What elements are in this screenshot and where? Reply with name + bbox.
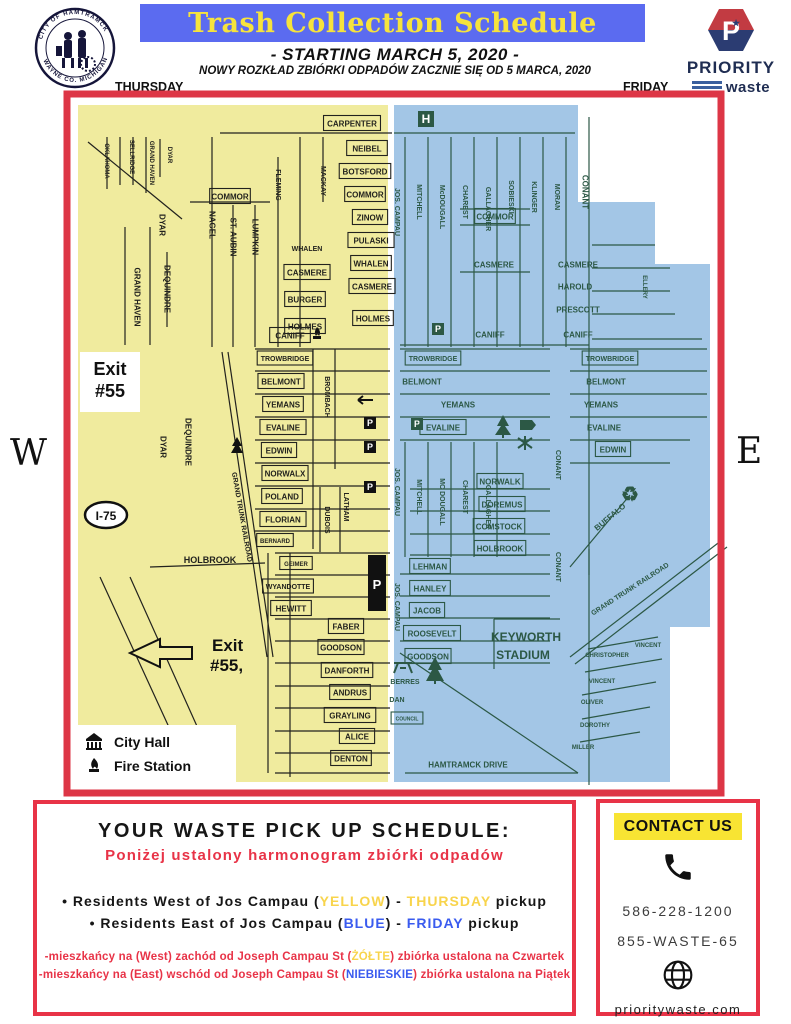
svg-text:JOS. CAMPAU: JOS. CAMPAU: [393, 188, 400, 236]
street-label: PRESCOTT: [556, 306, 600, 315]
svg-text:McDOUGALL: McDOUGALL: [438, 185, 445, 230]
svg-text:DYAR: DYAR: [157, 214, 166, 236]
svg-text:GOODSON: GOODSON: [320, 644, 362, 653]
street-label: CONANT: [554, 552, 561, 583]
exit-55-sign: Exit #55: [80, 352, 140, 412]
svg-text:NORWALX: NORWALX: [265, 470, 306, 479]
svg-text:BERRES: BERRES: [390, 679, 420, 686]
svg-text:EVALINE: EVALINE: [587, 424, 622, 433]
svg-text:ZINOW: ZINOW: [357, 214, 384, 223]
collection-zone-map: H P PPPPP ♻ Exit #55 I-75 Exit #55,: [70, 97, 718, 790]
street-label: GRAND HAVEN: [132, 268, 141, 327]
west-compass-label: W: [10, 433, 47, 474]
svg-text:OKLAHOMA: OKLAHOMA: [103, 143, 109, 179]
svg-text:EVALINE: EVALINE: [426, 424, 461, 433]
west-rule: • Residents West of Jos Campau (YELLOW) …: [37, 890, 572, 912]
svg-text:JOS. CAMPAU: JOS. CAMPAU: [393, 468, 400, 516]
svg-text:P: P: [373, 577, 382, 592]
parking-icon: P: [364, 417, 376, 429]
phone-number-1: 586-228-1200: [600, 903, 756, 919]
street-label: STADIUM: [496, 648, 550, 662]
street-label: DYAR: [158, 436, 167, 458]
svg-text:Exit: Exit: [93, 359, 126, 379]
legend-city-hall: City Hall: [114, 734, 170, 750]
schedule-subtitle-polish: Poniżej ustalony harmonogram zbiórki odp…: [45, 847, 564, 864]
svg-text:BELMONT: BELMONT: [261, 378, 301, 387]
title-banner: Trash Collection Schedule: [140, 4, 645, 42]
street-label: CANIFF: [563, 331, 592, 340]
svg-text:DYAR: DYAR: [158, 436, 167, 458]
street-label: VINCENT: [589, 679, 616, 685]
svg-text:BOTSFORD: BOTSFORD: [343, 168, 388, 177]
street-label: LUMPKIN: [250, 219, 259, 256]
svg-text:NAGEL: NAGEL: [207, 211, 216, 239]
street-label: KLINGER: [530, 181, 537, 213]
svg-text:ANDRUS: ANDRUS: [333, 689, 368, 698]
street-label: MILLER: [572, 745, 595, 751]
svg-text:GRAND HAVEN: GRAND HAVEN: [148, 141, 154, 185]
svg-text:EVALINE: EVALINE: [266, 424, 301, 433]
street-label: LATHAM: [342, 492, 349, 521]
svg-text:ALICE: ALICE: [345, 733, 370, 742]
street-label: GRAND HAVEN: [148, 141, 154, 185]
svg-text:CHAREST: CHAREST: [461, 185, 468, 220]
svg-text:CHAREST: CHAREST: [461, 480, 468, 515]
street-label: BERRES: [390, 679, 420, 686]
logo-waste-word: waste: [726, 79, 770, 96]
svg-text:FLEMING: FLEMING: [274, 169, 281, 201]
svg-text:DOROTHY: DOROTHY: [580, 723, 610, 729]
street-label: CHRISTOPHER: [585, 653, 629, 659]
svg-text:BELMONT: BELMONT: [402, 378, 442, 387]
svg-text:DEQUINDRE: DEQUINDRE: [183, 418, 192, 467]
map-legend: City Hall Fire Station: [78, 725, 236, 782]
svg-text:MC DOUGALL: MC DOUGALL: [438, 478, 445, 526]
svg-text:EDWIN: EDWIN: [600, 446, 627, 455]
street-label: CANIFF: [475, 331, 504, 340]
page-title: Trash Collection Schedule: [188, 8, 597, 39]
svg-text:HOLBROOK: HOLBROOK: [477, 545, 524, 554]
svg-text:ST. AUBIN: ST. AUBIN: [228, 218, 237, 257]
parking-icon: P: [364, 481, 376, 493]
svg-text:P: P: [367, 418, 373, 428]
street-label: JOS. CAMPAU: [393, 583, 400, 631]
street-label: MITCHELL: [415, 479, 422, 515]
svg-text:DAN: DAN: [389, 697, 404, 704]
street-label: BELMONT: [402, 378, 442, 387]
svg-text:BURGER: BURGER: [288, 296, 323, 305]
svg-text:LEHMAN: LEHMAN: [413, 563, 447, 572]
recycle-icon: ♻: [621, 484, 639, 506]
svg-text:FABER: FABER: [332, 623, 359, 632]
svg-text:P: P: [367, 482, 373, 492]
phone-number-2: 855-WASTE-65: [600, 933, 756, 949]
svg-text:GOODSON: GOODSON: [407, 653, 449, 662]
street-label: HAROLD: [558, 283, 592, 292]
svg-text:TROWBRIDGE: TROWBRIDGE: [261, 356, 310, 363]
svg-text:YEMANS: YEMANS: [441, 401, 476, 410]
svg-text:HAMTRAMCK DRIVE: HAMTRAMCK DRIVE: [428, 761, 508, 770]
hospital-icon: H: [418, 111, 434, 127]
svg-text:COMMOR: COMMOR: [476, 213, 514, 222]
svg-text:HOLBROOK: HOLBROOK: [184, 555, 237, 565]
logo-wordmark: PRIORITY: [676, 58, 786, 78]
street-label: OKLAHOMA: [103, 143, 109, 179]
svg-text:PULASKI: PULASKI: [353, 237, 388, 246]
svg-text:CASMERE: CASMERE: [474, 261, 515, 270]
svg-text:MORAN: MORAN: [553, 184, 560, 210]
svg-text:GEIMER: GEIMER: [284, 562, 308, 568]
svg-text:DENTON: DENTON: [334, 755, 368, 764]
street-label: WHALEN: [292, 246, 323, 253]
svg-text:P: P: [435, 324, 441, 334]
legend-fire-station: Fire Station: [114, 758, 191, 774]
svg-text:YEMANS: YEMANS: [266, 401, 301, 410]
street-label: CHAREST: [461, 185, 468, 220]
svg-text:YEMANS: YEMANS: [584, 401, 619, 410]
svg-text:MACKAY: MACKAY: [319, 166, 326, 196]
svg-text:LATHAM: LATHAM: [342, 492, 349, 521]
street-label: DUBOIS: [323, 506, 330, 534]
start-date-line-polish: NOWY ROZKŁAD ZBIÓRKI ODPADÓW ZACZNIE SIĘ…: [100, 65, 690, 77]
svg-text:CONANT: CONANT: [554, 450, 561, 481]
map-notch-topright: [578, 105, 710, 202]
street-label: KEYWORTH: [491, 630, 561, 644]
svg-text:P: P: [414, 419, 420, 429]
svg-text:BELMONT: BELMONT: [586, 378, 626, 387]
street-label: McDOUGALL: [438, 185, 445, 230]
svg-text:JOS. CAMPAU: JOS. CAMPAU: [393, 583, 400, 631]
svg-text:WYANDOTTE: WYANDOTTE: [266, 584, 311, 591]
parking-icon: P: [364, 441, 376, 453]
svg-text:KLINGER: KLINGER: [530, 181, 537, 213]
svg-text:HOLMES: HOLMES: [356, 315, 391, 324]
schedule-title: YOUR WASTE PICK UP SCHEDULE:: [45, 820, 564, 843]
street-label: CHAREST: [461, 480, 468, 515]
street-label: DAN: [389, 697, 404, 704]
svg-text:CONANT: CONANT: [580, 175, 589, 209]
svg-text:Exit: Exit: [212, 636, 244, 655]
street-label: CASMERE: [558, 261, 599, 270]
svg-text:PRESCOTT: PRESCOTT: [556, 306, 600, 315]
svg-text:WHALEN: WHALEN: [292, 246, 323, 253]
svg-text:MITCHELL: MITCHELL: [415, 479, 422, 515]
svg-text:DOREMUS: DOREMUS: [482, 501, 524, 510]
street-label: CASMERE: [474, 261, 515, 270]
street-label: JOS. CAMPAU: [393, 188, 400, 236]
svg-text:#55,: #55,: [210, 656, 243, 675]
street-label: HAMTRAMCK DRIVE: [428, 761, 508, 770]
street-label: DEQUINDRE: [183, 418, 192, 467]
svg-text:SELLRIDGE: SELLRIDGE: [128, 140, 134, 174]
street-label: DYAR: [157, 214, 166, 236]
svg-text:GRAND HAVEN: GRAND HAVEN: [132, 268, 141, 327]
svg-text:STADIUM: STADIUM: [496, 648, 550, 662]
svg-text:TROWBRIDGE: TROWBRIDGE: [409, 356, 458, 363]
svg-text:COMMOR: COMMOR: [211, 193, 249, 202]
svg-text:CONANT: CONANT: [554, 552, 561, 583]
street-label: MC DOUGALL: [438, 478, 445, 526]
map-notch-right: [655, 202, 710, 264]
svg-text:VINCENT: VINCENT: [635, 643, 662, 649]
schedule-box: YOUR WASTE PICK UP SCHEDULE: Poniżej ust…: [33, 800, 576, 1016]
seal-inner-ring: [46, 19, 104, 77]
street-label: EVALINE: [587, 424, 622, 433]
street-label: DYAR: [166, 147, 172, 164]
svg-text:DANFORTH: DANFORTH: [325, 667, 370, 676]
contact-box: CONTACT US 586-228-1200 855-WASTE-65 pri…: [596, 799, 760, 1016]
priority-waste-logo: P ★ PRIORITY waste: [676, 8, 786, 96]
street-label: MACKAY: [319, 166, 326, 196]
svg-text:MITCHELL: MITCHELL: [415, 184, 422, 220]
city-seal: CITY OF HAMTRAMCK WAYNE CO. MICHIGAN: [30, 6, 120, 90]
svg-text:I-75: I-75: [96, 509, 117, 523]
svg-text:HANLEY: HANLEY: [414, 585, 448, 594]
i75-shield-icon: I-75: [85, 502, 127, 528]
street-label: CONANT: [554, 450, 561, 481]
svg-text:BROMBACH: BROMBACH: [323, 376, 330, 418]
street-label: DOROTHY: [580, 723, 610, 729]
svg-text:DUBOIS: DUBOIS: [323, 506, 330, 534]
street-label: DEQUINDRE: [162, 265, 171, 314]
logo-star-icon: ★: [732, 18, 741, 28]
svg-text:CASMERE: CASMERE: [558, 261, 599, 270]
svg-text:OLIVER: OLIVER: [581, 700, 604, 706]
svg-text:GRAYLING: GRAYLING: [329, 712, 371, 721]
phone-icon: [661, 850, 695, 884]
svg-text:VINCENT: VINCENT: [589, 679, 616, 685]
svg-text:CANIFF: CANIFF: [275, 332, 304, 341]
svg-text:NEIBEL: NEIBEL: [352, 145, 381, 154]
svg-text:CASMERE: CASMERE: [287, 269, 328, 278]
svg-text:COUNCIL: COUNCIL: [396, 717, 419, 723]
svg-text:FLORIAN: FLORIAN: [265, 516, 301, 525]
west-rule-polish: -mieszkańcy na (West) zachód od Joseph C…: [37, 948, 572, 966]
street-label: SELLRIDGE: [128, 140, 134, 174]
map-notch-bottomright: [670, 627, 710, 782]
svg-text:CASMERE: CASMERE: [352, 283, 393, 292]
svg-text:CARPENTER: CARPENTER: [327, 120, 377, 129]
street-label: YEMANS: [584, 401, 619, 410]
street-label: BELMONT: [586, 378, 626, 387]
svg-text:CANIFF: CANIFF: [475, 331, 504, 340]
street-label: FLEMING: [274, 169, 281, 201]
svg-text:H: H: [422, 112, 431, 126]
svg-text:MILLER: MILLER: [572, 745, 595, 751]
svg-text:TROWBRIDGE: TROWBRIDGE: [586, 356, 635, 363]
street-label: NAGEL: [207, 211, 216, 239]
east-compass-label: E: [736, 431, 762, 472]
parking-garage-icon: P: [368, 555, 386, 611]
east-rule-polish: -mieszkańcy na (East) wschód od Joseph C…: [37, 966, 572, 984]
svg-text:HAROLD: HAROLD: [558, 283, 592, 292]
svg-text:COMSTOCK: COMSTOCK: [476, 523, 523, 532]
parking-icon: P: [432, 323, 444, 335]
svg-text:HEWITT: HEWITT: [276, 605, 307, 614]
svg-text:EDWIN: EDWIN: [266, 447, 293, 456]
street-label: MORAN: [553, 184, 560, 210]
svg-text:#55: #55: [95, 381, 125, 401]
svg-text:JACOB: JACOB: [413, 607, 441, 616]
globe-icon: [662, 959, 694, 991]
svg-text:COMMOR: COMMOR: [346, 191, 384, 200]
website-url: prioritywaste.com: [600, 1002, 756, 1017]
priority-hexagon-icon: P ★: [707, 8, 755, 52]
contact-title: CONTACT US: [614, 813, 743, 840]
svg-text:CHRISTOPHER: CHRISTOPHER: [585, 653, 629, 659]
svg-text:POLAND: POLAND: [265, 493, 299, 502]
street-label: VINCENT: [635, 643, 662, 649]
street-label: CONANT: [580, 175, 589, 209]
east-rule: • Residents East of Jos Campau (BLUE) - …: [37, 912, 572, 934]
svg-text:P: P: [367, 442, 373, 452]
svg-text:CANIFF: CANIFF: [563, 331, 592, 340]
street-label: ST. AUBIN: [228, 218, 237, 257]
svg-text:WHALEN: WHALEN: [353, 260, 388, 269]
svg-text:DEQUINDRE: DEQUINDRE: [162, 265, 171, 314]
svg-text:NORWALK: NORWALK: [479, 478, 520, 487]
svg-text:BERNARD: BERNARD: [260, 539, 291, 545]
street-label: BROMBACH: [323, 376, 330, 418]
street-label: ELLERY: [641, 275, 647, 298]
street-label: YEMANS: [441, 401, 476, 410]
svg-text:DYAR: DYAR: [166, 147, 172, 164]
svg-text:ELLERY: ELLERY: [641, 275, 647, 298]
svg-text:ROOSEVELT: ROOSEVELT: [408, 630, 457, 639]
street-label: OLIVER: [581, 700, 604, 706]
street-label: JOS. CAMPAU: [393, 468, 400, 516]
svg-text:KEYWORTH: KEYWORTH: [491, 630, 561, 644]
street-label: HOLBROOK: [184, 555, 237, 565]
start-date-line: - STARTING MARCH 5, 2020 -: [120, 45, 670, 65]
street-label: MITCHELL: [415, 184, 422, 220]
svg-text:LUMPKIN: LUMPKIN: [250, 219, 259, 256]
